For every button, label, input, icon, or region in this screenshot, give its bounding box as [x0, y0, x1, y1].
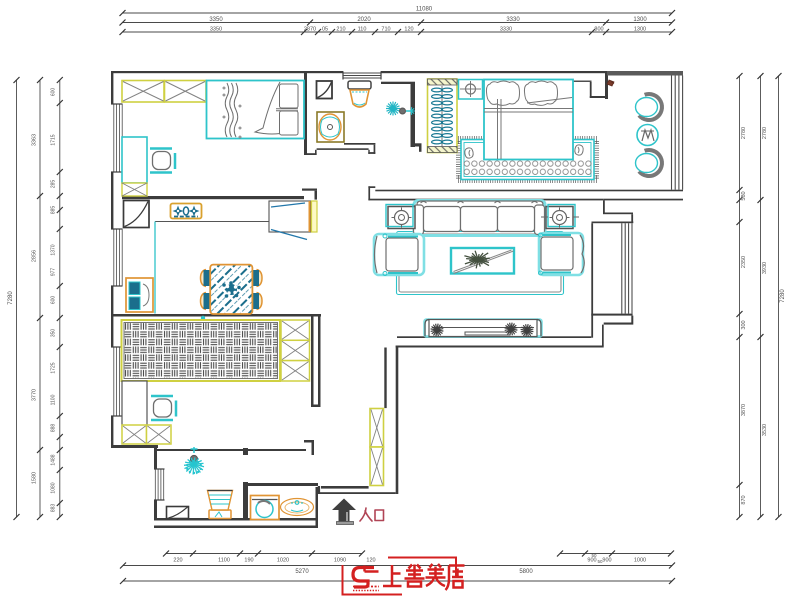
svg-text:1488: 1488: [51, 454, 57, 465]
svg-text:7280: 7280: [8, 291, 14, 305]
svg-text:120: 120: [366, 558, 375, 564]
svg-text:1300: 1300: [633, 17, 647, 23]
svg-text:3770: 3770: [32, 389, 38, 401]
svg-text:3530: 3530: [762, 424, 768, 436]
svg-text:3330: 3330: [500, 27, 512, 33]
svg-text:2780: 2780: [762, 127, 768, 139]
svg-text:3350: 3350: [209, 17, 223, 23]
svg-text:2350: 2350: [741, 256, 747, 268]
svg-text:300: 300: [741, 320, 747, 329]
svg-text:900: 900: [602, 558, 611, 564]
svg-text:350: 350: [51, 329, 57, 338]
svg-text:870: 870: [741, 495, 747, 504]
svg-text:2870: 2870: [304, 27, 316, 33]
svg-text:1000: 1000: [634, 558, 646, 564]
svg-text:2780: 2780: [741, 127, 747, 139]
svg-text:120: 120: [404, 27, 413, 33]
svg-text:220: 220: [173, 558, 182, 564]
svg-text:05: 05: [322, 27, 328, 33]
svg-text:3930: 3930: [762, 262, 768, 274]
svg-text:977: 977: [51, 268, 57, 277]
svg-text:885: 885: [51, 206, 57, 215]
svg-text:285: 285: [51, 180, 57, 189]
svg-text:5800: 5800: [519, 569, 533, 575]
svg-text:1580: 1580: [32, 472, 38, 484]
svg-text:110: 110: [358, 27, 367, 33]
svg-text:3350: 3350: [210, 27, 222, 33]
svg-text:710: 710: [381, 27, 390, 33]
svg-text:600: 600: [51, 296, 57, 305]
svg-text:210: 210: [336, 27, 345, 33]
svg-text:11080: 11080: [416, 7, 433, 13]
svg-text:800: 800: [594, 27, 603, 33]
svg-text:900: 900: [587, 558, 596, 564]
svg-text:3870: 3870: [741, 404, 747, 416]
svg-text:5270: 5270: [295, 569, 309, 575]
svg-text:50: 50: [597, 559, 603, 564]
svg-text:1020: 1020: [277, 558, 289, 564]
svg-text:2020: 2020: [357, 17, 371, 23]
svg-text:50: 50: [591, 553, 597, 558]
svg-text:2856: 2856: [32, 250, 38, 262]
svg-text:1725: 1725: [51, 362, 57, 373]
svg-text:7280: 7280: [780, 289, 786, 303]
svg-text:600: 600: [51, 88, 57, 97]
svg-text:1100: 1100: [218, 558, 230, 564]
svg-text:580: 580: [741, 191, 747, 200]
svg-text:1300: 1300: [634, 27, 646, 33]
svg-text:1090: 1090: [334, 558, 346, 564]
svg-text:1080: 1080: [51, 482, 57, 493]
svg-text:1370: 1370: [51, 244, 57, 255]
svg-text:190: 190: [244, 558, 253, 564]
svg-text:1715: 1715: [51, 134, 57, 145]
svg-text:3330: 3330: [506, 17, 520, 23]
svg-text:1100: 1100: [51, 394, 57, 405]
svg-text:883: 883: [51, 504, 57, 513]
svg-text:3363: 3363: [32, 134, 38, 146]
svg-text:888: 888: [51, 424, 57, 433]
